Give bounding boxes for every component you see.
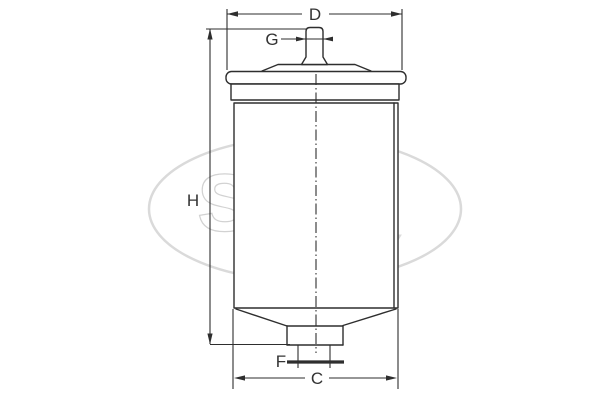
cap-plateau (262, 65, 371, 72)
h-arrow-up-icon (207, 29, 212, 40)
inlet-pipe (302, 28, 328, 65)
drawing-canvas: SCT ® GERMANY (0, 0, 600, 400)
dim-label-c: C (311, 369, 323, 388)
g-arrow-right-icon (323, 37, 333, 42)
funnel-left-slant (236, 309, 287, 326)
h-arrow-down-icon (207, 334, 212, 345)
d-arrow-left-icon (227, 11, 238, 16)
dim-label-h: H (187, 191, 199, 210)
filter-outline (226, 28, 406, 354)
c-arrow-right-icon (386, 375, 397, 380)
fuel-filter-diagram: SCT ® GERMANY (0, 0, 600, 400)
g-arrow-left-icon (296, 37, 306, 42)
dim-label-d: D (309, 5, 321, 24)
dimension-f: F (276, 345, 344, 371)
crimp-band (231, 84, 399, 100)
funnel-right-slant (343, 309, 396, 326)
c-arrow-left-icon (234, 375, 245, 380)
dim-label-g: G (265, 30, 278, 49)
dim-label-f: F (276, 352, 286, 371)
d-arrow-right-icon (391, 11, 402, 16)
